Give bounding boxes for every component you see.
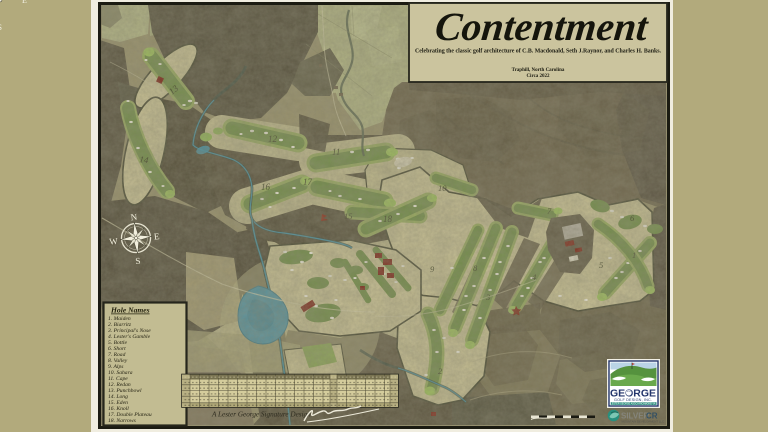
svg-text:S: S: [135, 256, 141, 266]
svg-text:LESTER GEORGE ASGCA RICHMOND V: LESTER GEORGE ASGCA RICHMOND VA: [611, 403, 656, 406]
svg-text:18. Narrows: 18. Narrows: [108, 418, 136, 424]
svg-text:A Lester George Signature Desi: A Lester George Signature Design: [211, 411, 311, 419]
svg-text:Celebrating the classic golf a: Celebrating the classic golf architectur…: [415, 48, 661, 55]
svg-text:Traphill, North Carolina: Traphill, North Carolina: [512, 68, 565, 73]
svg-text:Hole Names: Hole Names: [110, 306, 150, 315]
svg-text:E: E: [22, 0, 27, 5]
svg-text:W: W: [109, 236, 119, 247]
svg-text:Circa 2022: Circa 2022: [526, 74, 550, 79]
svg-text:GOLF DESIGN, INC.: GOLF DESIGN, INC.: [614, 398, 652, 402]
svg-text:MOUNTAIN DEVELOPMENT LLC: MOUNTAIN DEVELOPMENT LLC: [622, 420, 664, 424]
svg-text:S: S: [0, 23, 2, 32]
svg-text:Contentment: Contentment: [433, 4, 652, 49]
